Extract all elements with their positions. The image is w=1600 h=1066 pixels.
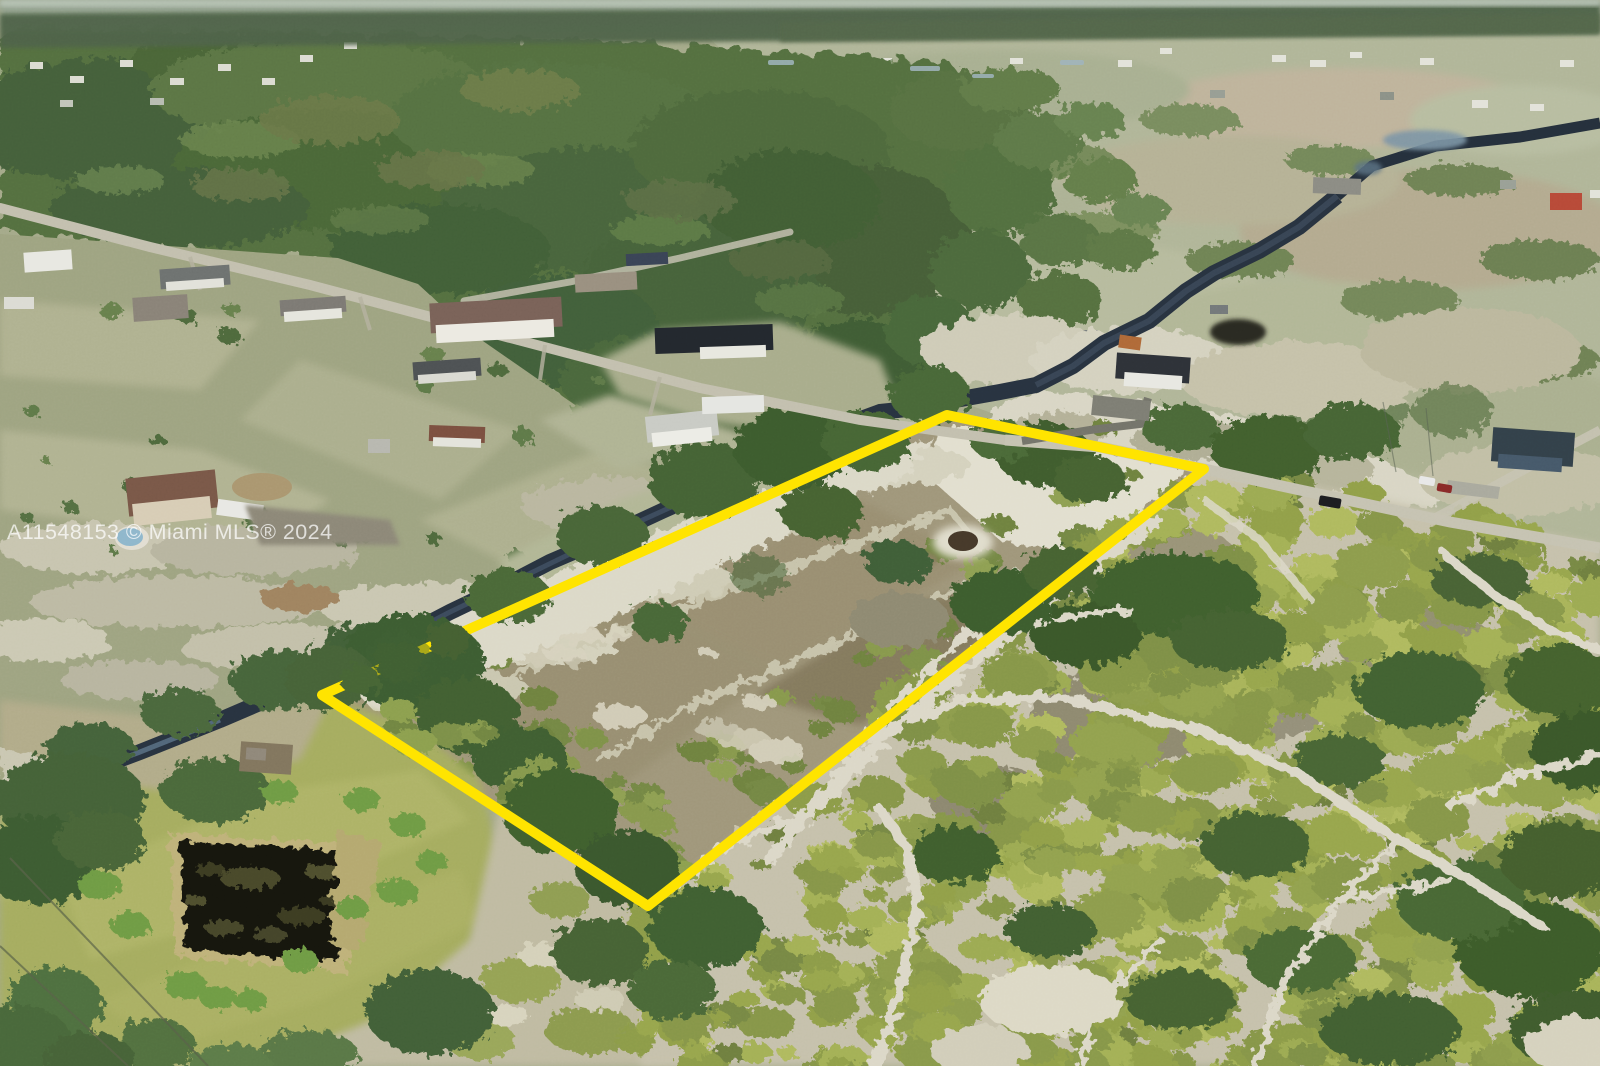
svg-text:A11548153 © Miami MLS® 2024: A11548153 © Miami MLS® 2024	[7, 520, 333, 544]
